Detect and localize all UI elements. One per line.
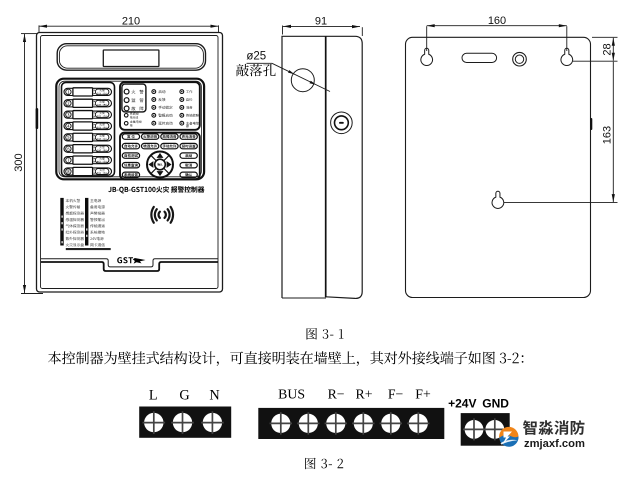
svg-text:BUS: BUS [278,387,305,402]
svg-text:+24V: +24V [448,397,476,411]
svg-text:91: 91 [315,16,327,28]
svg-text:300: 300 [13,153,25,171]
svg-text:210: 210 [122,16,140,28]
svg-text:R−: R− [328,387,345,402]
svg-text:28: 28 [602,43,614,55]
svg-text:ø25: ø25 [246,51,266,63]
svg-text:L: L [149,387,158,403]
svg-text:F−: F− [388,387,404,402]
svg-text:GND: GND [482,397,509,411]
svg-text:163: 163 [602,126,614,144]
svg-text:160: 160 [488,15,506,27]
svg-text:R+: R+ [356,387,373,402]
svg-text:zmjaxf.com: zmjaxf.com [524,438,585,450]
svg-text:G: G [179,387,189,403]
svg-text:F+: F+ [415,387,431,402]
svg-text:N: N [209,387,219,403]
